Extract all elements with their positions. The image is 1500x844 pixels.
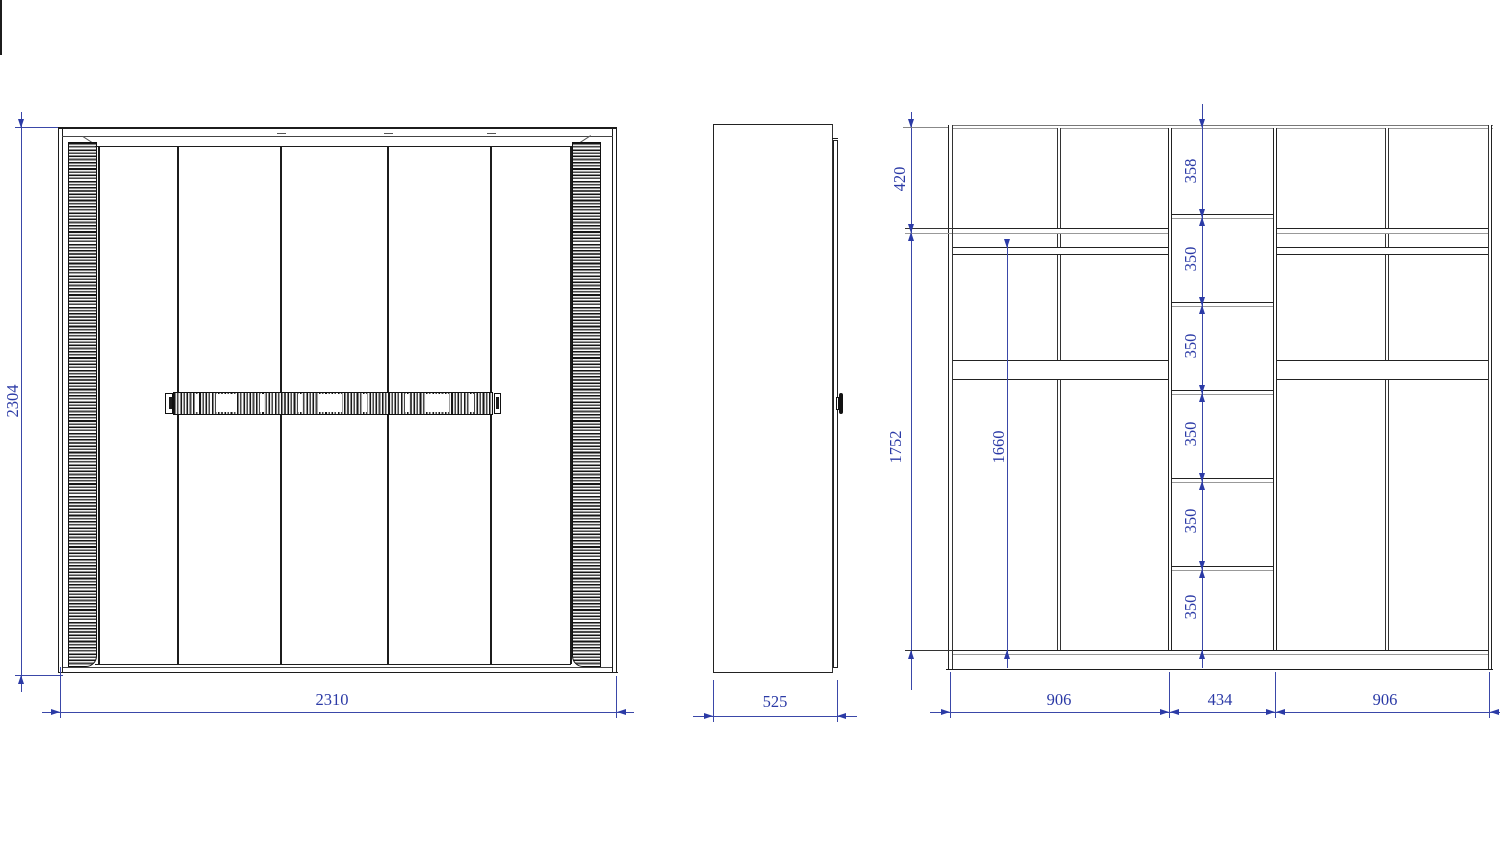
center-cell-label-6: 350 bbox=[1183, 595, 1200, 620]
interior-center-column-left-wall bbox=[1168, 128, 1172, 650]
band-gap-large-1 bbox=[216, 394, 237, 412]
interior-right-hanging-rail bbox=[1277, 247, 1488, 255]
wardrobe-technical-drawing: 2304 2310 525 420 1752 1660 bbox=[0, 0, 1500, 844]
front-doors-top-line bbox=[95, 146, 571, 147]
band-gap-small-6 bbox=[470, 394, 474, 412]
side-depth-label: 525 bbox=[763, 694, 788, 711]
interior-center-shelf-1 bbox=[1172, 214, 1274, 219]
dimension-line bbox=[693, 716, 857, 717]
front-right-handle-slot bbox=[496, 397, 499, 409]
arrow-down-icon bbox=[1004, 239, 1010, 248]
interior-top-height-label: 420 bbox=[892, 167, 909, 192]
page-border-artifact bbox=[0, 0, 2, 55]
arrow-up-icon bbox=[1199, 569, 1205, 578]
arrow-left-icon bbox=[1170, 709, 1179, 715]
front-right-edge-outer bbox=[616, 127, 617, 673]
extension-line bbox=[713, 680, 714, 722]
interior-right-wall bbox=[1488, 125, 1493, 670]
band-gap-small-1 bbox=[195, 394, 199, 412]
front-cornice-top-line bbox=[58, 127, 617, 129]
band-gap-small-2 bbox=[260, 394, 264, 412]
front-bottom-edge bbox=[58, 672, 618, 674]
front-door-edge-left bbox=[98, 146, 100, 664]
arrow-right-icon bbox=[704, 713, 713, 719]
arrow-right-icon bbox=[941, 709, 950, 715]
dimension-line bbox=[911, 112, 912, 690]
arrow-right-icon bbox=[1266, 709, 1275, 715]
arrow-down-icon bbox=[1199, 119, 1205, 128]
arrow-up-icon bbox=[18, 675, 24, 684]
interior-left-mullion bbox=[1057, 128, 1061, 650]
interior-top-panel bbox=[948, 125, 1493, 129]
front-width-label: 2310 bbox=[316, 692, 349, 709]
interior-left-top-shelf bbox=[953, 228, 1168, 234]
center-cell-label-3: 350 bbox=[1183, 334, 1200, 359]
interior-width-label-2: 434 bbox=[1208, 692, 1233, 709]
arrow-down-icon bbox=[908, 119, 914, 128]
extension-line bbox=[60, 667, 61, 718]
front-cornice-mid-line bbox=[62, 136, 613, 137]
interior-bottom-edge bbox=[946, 669, 1493, 671]
interior-width-label-1: 906 bbox=[1047, 692, 1072, 709]
front-door-edge-right bbox=[570, 146, 572, 664]
side-handle-grip bbox=[839, 393, 843, 414]
side-door-top-tick bbox=[832, 138, 838, 139]
interior-left-hanging-rail bbox=[953, 247, 1168, 255]
dimension-line bbox=[42, 712, 634, 713]
arrow-up-icon bbox=[908, 650, 914, 659]
side-body bbox=[713, 124, 833, 673]
extension-line bbox=[950, 672, 951, 718]
arrow-up-icon bbox=[1199, 217, 1205, 226]
front-cornice-tick-3 bbox=[487, 133, 496, 135]
front-left-fluted-panel bbox=[68, 142, 97, 667]
band-gap-large-3 bbox=[426, 394, 449, 412]
interior-left-wall bbox=[948, 125, 953, 670]
front-right-fluted-panel bbox=[572, 142, 601, 667]
front-decor-band bbox=[173, 392, 493, 415]
interior-right-mid-shelf-band bbox=[1277, 360, 1488, 380]
interior-lower-height-label: 1752 bbox=[888, 431, 905, 464]
arrow-left-icon bbox=[837, 713, 846, 719]
center-cell-label-4: 350 bbox=[1183, 422, 1200, 447]
arrow-left-icon bbox=[1490, 709, 1499, 715]
front-left-edge-inner bbox=[62, 127, 63, 673]
dimension-line bbox=[930, 712, 1500, 713]
interior-right-top-shelf bbox=[1277, 228, 1488, 234]
front-left-handle bbox=[165, 393, 173, 414]
center-cell-label-5: 350 bbox=[1183, 509, 1200, 534]
interior-center-shelf-3 bbox=[1172, 390, 1274, 395]
front-cornice-tick-2 bbox=[384, 133, 393, 135]
interior-right-mullion bbox=[1385, 128, 1389, 650]
arrow-up-icon bbox=[1199, 650, 1205, 659]
arrow-up-icon bbox=[1199, 481, 1205, 490]
arrow-down-icon bbox=[18, 119, 24, 128]
front-left-edge-outer bbox=[58, 127, 59, 673]
arrow-right-icon bbox=[1160, 709, 1169, 715]
arrow-up-icon bbox=[1199, 393, 1205, 402]
arrow-up-icon bbox=[1004, 650, 1010, 659]
interior-center-shelf-2 bbox=[1172, 302, 1274, 307]
arrow-up-icon bbox=[1199, 305, 1205, 314]
arrow-left-icon bbox=[1276, 709, 1285, 715]
center-cell-label-1: 358 bbox=[1183, 159, 1200, 184]
arrow-left-icon bbox=[617, 709, 626, 715]
band-gap-small-3 bbox=[298, 394, 302, 412]
interior-center-shelf-4 bbox=[1172, 478, 1274, 483]
interior-left-mid-shelf-band bbox=[953, 360, 1168, 380]
center-cell-label-2: 350 bbox=[1183, 247, 1200, 272]
interior-floor-panel bbox=[953, 650, 1488, 655]
hanging-height-label: 1660 bbox=[991, 431, 1008, 464]
front-doors-bottom-line bbox=[95, 664, 571, 666]
front-plinth-line bbox=[63, 667, 612, 668]
band-gap-small-5 bbox=[405, 394, 409, 412]
interior-width-label-3: 906 bbox=[1373, 692, 1398, 709]
band-gap-large-2 bbox=[319, 394, 342, 412]
front-right-edge-inner bbox=[612, 127, 613, 673]
interior-center-column-right-wall bbox=[1273, 128, 1277, 650]
band-gap-small-4 bbox=[363, 394, 367, 412]
arrow-up-icon bbox=[908, 232, 914, 241]
front-height-label: 2304 bbox=[5, 385, 22, 418]
front-left-handle-slot bbox=[169, 397, 172, 409]
interior-center-shelf-5 bbox=[1172, 566, 1274, 571]
arrow-right-icon bbox=[51, 709, 60, 715]
front-cornice-tick-1 bbox=[277, 133, 286, 135]
front-right-handle bbox=[494, 393, 502, 414]
